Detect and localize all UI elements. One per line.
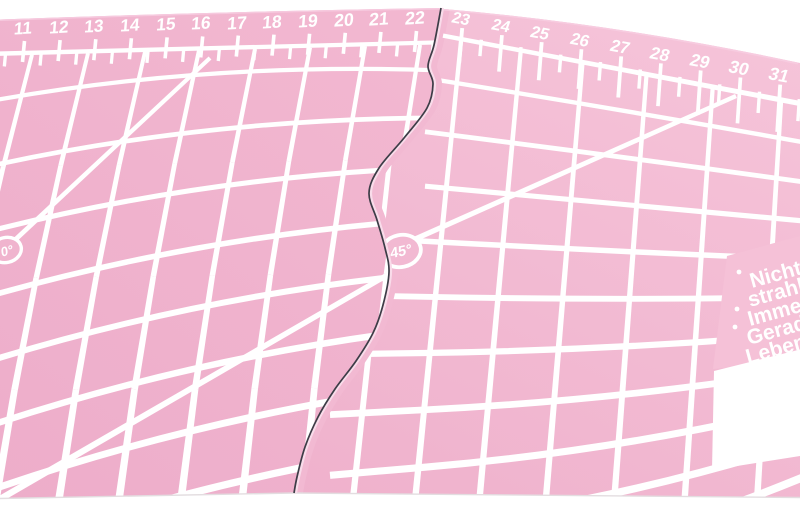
svg-text:19: 19 xyxy=(297,10,318,31)
svg-text:15: 15 xyxy=(156,13,177,34)
svg-text:17: 17 xyxy=(226,12,247,33)
svg-text:14: 14 xyxy=(120,14,141,35)
svg-text:22: 22 xyxy=(404,7,425,28)
svg-text:12: 12 xyxy=(49,16,70,37)
svg-text:11: 11 xyxy=(13,17,33,38)
svg-text:20: 20 xyxy=(333,9,354,30)
svg-text:16: 16 xyxy=(190,12,211,33)
svg-text:13: 13 xyxy=(84,15,105,36)
svg-text:0°: 0° xyxy=(0,242,14,260)
svg-text:18: 18 xyxy=(261,11,282,32)
svg-text:21: 21 xyxy=(368,8,389,29)
